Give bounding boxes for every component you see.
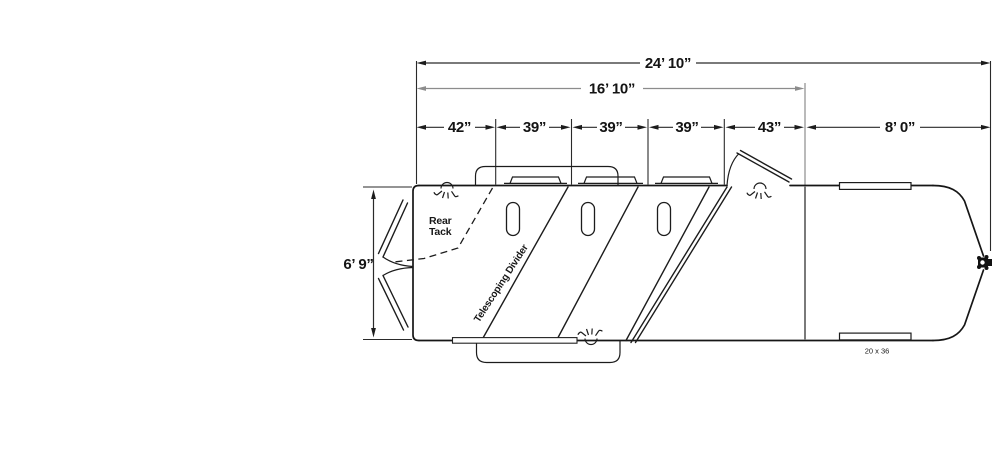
trailer-floor-plan-drawing: 24’ 10” 16’ 10” 42” 39” 39” 39” 43” 8’ 0…	[0, 0, 1000, 465]
feed-window-3	[655, 177, 718, 183]
window-size-label: 20 x 36	[865, 347, 890, 356]
rear-wall	[413, 186, 419, 341]
side-rail	[453, 338, 578, 344]
horse-area-length-label: 16’ 10”	[589, 80, 635, 97]
nose-bottom-wall	[933, 270, 984, 341]
divider-2	[557, 187, 638, 340]
trailer-floor-plan-page: 24’ 10” 16’ 10” 42” 39” 39” 39” 43” 8’ 0…	[0, 0, 1000, 465]
extension-lines	[363, 61, 991, 340]
nose-top-wall	[933, 186, 984, 257]
telescoping-divider-label: Telescoping Divider	[472, 242, 531, 324]
rear-tack-label-line2: Tack	[429, 226, 452, 238]
dome-light-icon	[747, 183, 771, 199]
roof-vent-2	[582, 203, 595, 236]
dome-light-icon	[578, 329, 602, 345]
stall-2-width-label: 39”	[599, 119, 622, 136]
coupler-icon	[977, 255, 992, 270]
stall-3-width-label: 39”	[675, 119, 698, 136]
dimension-overall-length: 24’ 10”	[417, 55, 991, 72]
escape-door-swing-arc	[727, 154, 739, 186]
stall-1-width-label: 39”	[523, 119, 546, 136]
rear-door-bottom	[379, 276, 409, 331]
dimension-box-width: 6’ 9”	[343, 190, 376, 338]
divider-4-double	[631, 187, 732, 343]
box-width-label: 6’ 9”	[343, 256, 373, 273]
roof-vent-3	[658, 203, 671, 236]
trailer-body	[413, 186, 984, 341]
rear-door-bottom-swing-arc	[383, 268, 413, 276]
stall-4-width-label: 43”	[758, 119, 781, 136]
dimension-stall-row: 42” 39” 39” 39” 43” 8’ 0”	[417, 119, 991, 136]
gooseneck-window-bottom	[840, 333, 912, 340]
gooseneck-length-label: 8’ 0”	[885, 119, 915, 136]
rear-tack-width-label: 42”	[448, 119, 471, 136]
feed-window-1	[504, 177, 567, 183]
rear-doors	[379, 200, 414, 330]
escape-door	[727, 151, 792, 186]
rear-door-top	[379, 200, 408, 257]
divider-1	[483, 187, 568, 338]
dimension-horse-area-length: 16’ 10”	[417, 80, 805, 97]
feed-window-2	[578, 177, 643, 183]
roof-vents	[507, 203, 671, 236]
escape-door-panel	[737, 151, 792, 183]
overall-length-label: 24’ 10”	[645, 55, 691, 72]
gooseneck-window-top	[840, 183, 912, 190]
feed-windows	[504, 177, 718, 183]
roof-vent-1	[507, 203, 520, 236]
